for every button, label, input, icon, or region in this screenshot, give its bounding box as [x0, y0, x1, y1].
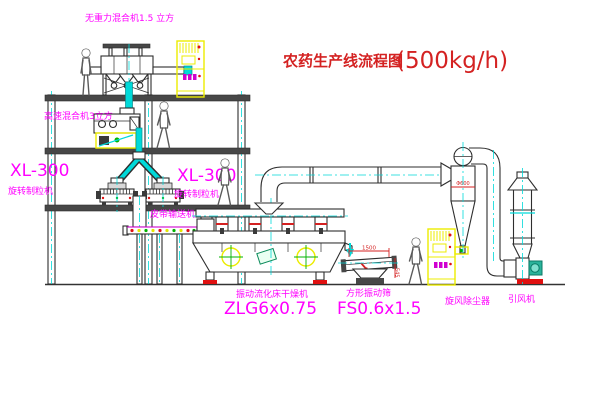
dryer-model-label: ZLG6x0.75	[224, 299, 317, 319]
diagram-svg: 无重力混合机1.5 立方 高速混合机3立方 XL-300 旋转制粒机 XL-30…	[0, 0, 600, 403]
mixer-top	[87, 44, 192, 120]
fan-name-label: 引风机	[508, 293, 535, 305]
control-cabinet-ground	[428, 229, 455, 285]
cyclone-name-label: 旋风除尘器	[445, 295, 490, 307]
sieve-model-label: FS0.6x1.5	[337, 299, 421, 319]
mixer-2f-label: 高速混合机3立方	[44, 110, 113, 122]
worker-top-floor	[81, 49, 91, 95]
exhaust-duct	[255, 163, 453, 214]
sieve-dim-height: 545	[394, 268, 400, 278]
worker-second-floor	[157, 102, 170, 148]
dryer-feet	[203, 272, 327, 284]
granulator-left-model: XL-300	[10, 161, 69, 181]
worker-ground	[409, 238, 422, 284]
vibrating-sieve: 1500 545	[338, 243, 400, 284]
belt-conveyor-label: 皮带输送机	[150, 208, 195, 220]
diagram-title: 农药生产线流程图	[282, 52, 403, 70]
granulator-left-name: 旋转制粒机	[8, 185, 53, 197]
sieve-dim-width: 1500	[362, 246, 376, 252]
diagram-title-capacity: (500kg/h)	[396, 48, 508, 74]
cad-flow-diagram: 无重力混合机1.5 立方 高速混合机3立方 XL-300 旋转制粒机 XL-30…	[0, 0, 600, 403]
sieve-name-label: 方形振动筛	[346, 287, 391, 299]
induced-draft-fan	[504, 244, 543, 284]
granulator-right-name: 旋转制粒机	[174, 188, 219, 200]
mixer-top-label: 无重力混合机1.5 立方	[85, 12, 174, 24]
y-splitter-duct	[117, 152, 163, 183]
dryer-connectors	[216, 217, 327, 231]
control-cabinet-top	[177, 41, 204, 97]
